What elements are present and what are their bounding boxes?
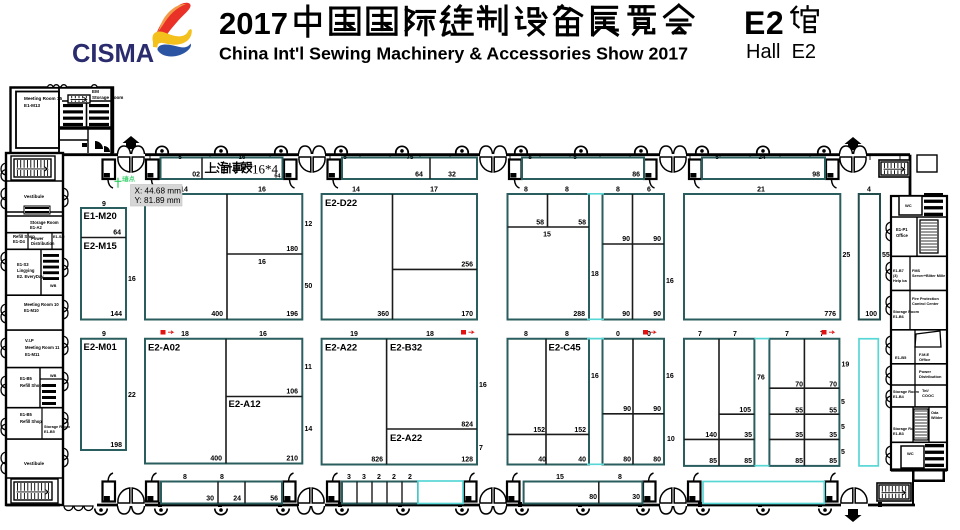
svg-text:19: 19 bbox=[842, 362, 850, 369]
svg-text:WC: WC bbox=[905, 203, 912, 208]
svg-text:10: 10 bbox=[667, 436, 675, 443]
svg-text:85: 85 bbox=[709, 458, 717, 465]
svg-text:18: 18 bbox=[591, 271, 599, 278]
svg-text:E2-B32: E2-B32 bbox=[390, 343, 422, 354]
svg-text:180: 180 bbox=[286, 246, 298, 253]
svg-text:Fire Protection: Fire Protection bbox=[912, 297, 939, 301]
svg-text:Control Center: Control Center bbox=[912, 302, 939, 306]
svg-text:24: 24 bbox=[759, 155, 766, 161]
svg-text:11: 11 bbox=[305, 364, 313, 371]
svg-text:18: 18 bbox=[426, 331, 434, 338]
svg-text:106: 106 bbox=[286, 389, 298, 396]
svg-text:55: 55 bbox=[882, 252, 890, 259]
svg-text:85: 85 bbox=[795, 458, 803, 465]
svg-text:EM: EM bbox=[92, 89, 99, 94]
svg-text:E1-M20: E1-M20 bbox=[84, 211, 117, 222]
svg-text:8: 8 bbox=[524, 187, 528, 194]
svg-text:170: 170 bbox=[461, 311, 473, 318]
svg-text:152: 152 bbox=[533, 427, 545, 434]
svg-text:196: 196 bbox=[286, 311, 298, 318]
svg-text:55: 55 bbox=[795, 408, 803, 415]
svg-text:WB: WB bbox=[50, 284, 57, 288]
svg-text:25: 25 bbox=[843, 252, 851, 259]
svg-text:80: 80 bbox=[623, 457, 631, 464]
svg-text:210: 210 bbox=[286, 456, 298, 463]
svg-text:E1-D4: E1-D4 bbox=[13, 239, 26, 244]
svg-text:75: 75 bbox=[407, 155, 414, 161]
svg-text:16: 16 bbox=[128, 276, 136, 283]
svg-text:E1-B3: E1-B3 bbox=[893, 432, 904, 436]
svg-text:E2: E2 bbox=[744, 5, 784, 41]
svg-text:(3): (3) bbox=[893, 274, 898, 278]
svg-text:90: 90 bbox=[653, 311, 661, 318]
svg-text:COOC: COOC bbox=[922, 393, 934, 398]
svg-text:7: 7 bbox=[698, 331, 702, 338]
svg-text:16: 16 bbox=[666, 278, 674, 285]
svg-text:Lingying: Lingying bbox=[17, 268, 35, 273]
svg-text:Distribution: Distribution bbox=[31, 241, 55, 246]
svg-text:16: 16 bbox=[239, 155, 246, 161]
svg-text:E1-B4: E1-B4 bbox=[893, 395, 905, 399]
svg-text:16: 16 bbox=[258, 187, 266, 194]
svg-text:21: 21 bbox=[757, 187, 765, 194]
svg-text:15: 15 bbox=[556, 474, 564, 481]
svg-text:17: 17 bbox=[430, 187, 438, 194]
svg-text:85: 85 bbox=[744, 458, 752, 465]
svg-text:WB: WB bbox=[50, 374, 57, 378]
svg-text:85: 85 bbox=[829, 458, 837, 465]
svg-text:E1-B5: E1-B5 bbox=[20, 412, 33, 417]
svg-text:3: 3 bbox=[347, 474, 351, 481]
svg-text:E2-C45: E2-C45 bbox=[549, 343, 582, 354]
svg-text:14: 14 bbox=[352, 187, 360, 194]
svg-text:7: 7 bbox=[785, 331, 789, 338]
svg-text:Distribution: Distribution bbox=[919, 374, 942, 379]
svg-text:Storage Room: Storage Room bbox=[893, 390, 920, 394]
svg-text:6: 6 bbox=[647, 187, 651, 194]
svg-text:E1-P1: E1-P1 bbox=[896, 227, 908, 232]
svg-text:FMS: FMS bbox=[912, 269, 920, 273]
svg-text:256: 256 bbox=[461, 262, 473, 269]
svg-text:2: 2 bbox=[408, 474, 412, 481]
svg-text:Wilder: Wilder bbox=[931, 416, 943, 420]
svg-text:80: 80 bbox=[653, 457, 661, 464]
svg-text:CISMA: CISMA bbox=[72, 40, 154, 68]
svg-text:China Int'l Sewing Machinery &: China Int'l Sewing Machinery & Accessori… bbox=[219, 44, 688, 64]
svg-text:86: 86 bbox=[632, 172, 640, 179]
svg-text:4: 4 bbox=[867, 187, 871, 194]
svg-text:30: 30 bbox=[632, 494, 640, 501]
svg-text:Vestibule: Vestibule bbox=[24, 194, 45, 199]
svg-text:9: 9 bbox=[102, 201, 106, 208]
svg-text:E1-B6: E1-B6 bbox=[893, 315, 904, 319]
svg-text:8: 8 bbox=[183, 474, 187, 481]
svg-text:E2-A12: E2-A12 bbox=[229, 399, 261, 410]
svg-text:E1-B5: E1-B5 bbox=[44, 430, 55, 434]
svg-text:Meeting Room 11: Meeting Room 11 bbox=[25, 345, 60, 350]
svg-text:40: 40 bbox=[578, 457, 586, 464]
svg-text:90: 90 bbox=[622, 311, 630, 318]
svg-text:76: 76 bbox=[757, 375, 765, 382]
svg-text:35: 35 bbox=[795, 432, 803, 439]
svg-text:8: 8 bbox=[220, 474, 224, 481]
svg-text:5: 5 bbox=[841, 399, 845, 406]
svg-text:98: 98 bbox=[812, 172, 820, 179]
svg-text:E2-A02: E2-A02 bbox=[148, 343, 180, 354]
svg-text:E1-M11: E1-M11 bbox=[25, 352, 40, 357]
svg-text:360: 360 bbox=[377, 311, 389, 318]
svg-text:E2-M15: E2-M15 bbox=[84, 241, 118, 252]
svg-text:Refill Shop: Refill Shop bbox=[20, 383, 42, 388]
svg-text:Oda: Oda bbox=[931, 411, 939, 415]
svg-text:E1-B5: E1-B5 bbox=[20, 376, 33, 381]
svg-text:152: 152 bbox=[574, 427, 586, 434]
svg-text:X: 44.68 mm: X: 44.68 mm bbox=[135, 187, 182, 196]
svg-text:14: 14 bbox=[305, 426, 313, 433]
svg-text:35: 35 bbox=[829, 432, 837, 439]
svg-text:50: 50 bbox=[305, 283, 313, 290]
svg-text:12: 12 bbox=[305, 221, 313, 228]
svg-text:400: 400 bbox=[211, 311, 223, 318]
svg-text:E2-A22: E2-A22 bbox=[390, 433, 422, 444]
svg-text:E1-S/2: E1-S/2 bbox=[53, 235, 65, 239]
svg-text:02: 02 bbox=[192, 172, 200, 179]
svg-text:2: 2 bbox=[377, 474, 381, 481]
svg-text:Meeting Room 10: Meeting Room 10 bbox=[24, 302, 59, 307]
svg-text:64: 64 bbox=[274, 174, 281, 180]
svg-text:400: 400 bbox=[210, 456, 222, 463]
svg-text:Storage Room: Storage Room bbox=[893, 310, 920, 314]
svg-text:826: 826 bbox=[371, 457, 383, 464]
svg-text:16: 16 bbox=[591, 373, 599, 380]
svg-text:90: 90 bbox=[623, 406, 631, 413]
svg-text:100: 100 bbox=[865, 311, 877, 318]
svg-text:140: 140 bbox=[705, 432, 717, 439]
svg-text:E1-A2: E1-A2 bbox=[30, 225, 43, 230]
svg-text:7: 7 bbox=[733, 331, 737, 338]
svg-text:56: 56 bbox=[270, 496, 278, 503]
svg-text:70: 70 bbox=[795, 382, 803, 389]
svg-text:16: 16 bbox=[479, 382, 487, 389]
svg-text:E2-D22: E2-D22 bbox=[325, 198, 357, 209]
svg-text:Server+Bliter Mille: Server+Bliter Mille bbox=[912, 274, 945, 278]
svg-text:18: 18 bbox=[181, 331, 189, 338]
svg-text:64: 64 bbox=[415, 172, 423, 179]
svg-text:64: 64 bbox=[113, 230, 121, 237]
svg-text:E1-B5: E1-B5 bbox=[895, 355, 907, 360]
svg-text:144: 144 bbox=[110, 311, 122, 318]
svg-text:Hall E2: Hall E2 bbox=[746, 41, 816, 63]
svg-text:24: 24 bbox=[233, 496, 241, 503]
svg-text:V.I.P: V.I.P bbox=[25, 338, 34, 343]
svg-text:Y: 81.89 mm: Y: 81.89 mm bbox=[135, 196, 181, 205]
svg-text:Office: Office bbox=[919, 357, 931, 362]
svg-text:105: 105 bbox=[739, 407, 751, 414]
svg-text:E1-S3: E1-S3 bbox=[17, 262, 29, 267]
svg-text:Storage Ro: Storage Ro bbox=[893, 427, 914, 431]
svg-text:Office: Office bbox=[896, 233, 909, 238]
svg-text:15: 15 bbox=[543, 232, 551, 239]
svg-text:7: 7 bbox=[479, 445, 483, 452]
svg-text:5: 5 bbox=[841, 424, 845, 431]
svg-text:22: 22 bbox=[128, 392, 136, 399]
svg-text:Meeting Room 15: Meeting Room 15 bbox=[24, 96, 62, 101]
svg-text:288: 288 bbox=[573, 311, 585, 318]
svg-text:3: 3 bbox=[362, 474, 366, 481]
svg-text:E2. EveryDay: E2. EveryDay bbox=[17, 274, 44, 279]
svg-text:19: 19 bbox=[350, 331, 358, 338]
svg-text:Refill Shop: Refill Shop bbox=[20, 419, 42, 424]
svg-text:90: 90 bbox=[653, 406, 661, 413]
svg-text:32: 32 bbox=[448, 172, 456, 179]
svg-text:776: 776 bbox=[824, 311, 836, 318]
svg-text:WC: WC bbox=[907, 451, 914, 456]
svg-text:2: 2 bbox=[392, 474, 396, 481]
svg-text:40: 40 bbox=[538, 457, 546, 464]
svg-text:0: 0 bbox=[616, 331, 620, 338]
svg-text:30: 30 bbox=[206, 496, 214, 503]
svg-text:8: 8 bbox=[618, 474, 622, 481]
svg-text:8: 8 bbox=[524, 331, 528, 338]
svg-text:90: 90 bbox=[653, 236, 661, 243]
svg-text:2017: 2017 bbox=[219, 6, 288, 41]
svg-text:8: 8 bbox=[565, 331, 569, 338]
svg-text:E1-M13: E1-M13 bbox=[24, 103, 41, 108]
svg-text:Storage Room: Storage Room bbox=[92, 95, 123, 100]
svg-text:8: 8 bbox=[565, 187, 569, 194]
svg-text:8: 8 bbox=[616, 187, 620, 194]
svg-text:16: 16 bbox=[259, 331, 267, 338]
svg-text:Help ba: Help ba bbox=[893, 279, 908, 283]
svg-text:E1-B7: E1-B7 bbox=[893, 269, 904, 273]
svg-text:55: 55 bbox=[829, 408, 837, 415]
svg-text:16: 16 bbox=[258, 259, 266, 266]
svg-text:70: 70 bbox=[829, 382, 837, 389]
svg-text:5: 5 bbox=[841, 449, 845, 456]
svg-text:198: 198 bbox=[110, 442, 122, 449]
svg-text:35: 35 bbox=[744, 432, 752, 439]
svg-text:128: 128 bbox=[461, 457, 473, 464]
svg-text:E2-A22: E2-A22 bbox=[325, 343, 357, 354]
svg-text:80: 80 bbox=[589, 494, 597, 501]
svg-text:824: 824 bbox=[461, 422, 473, 429]
svg-text:90: 90 bbox=[622, 236, 630, 243]
svg-text:58: 58 bbox=[536, 220, 544, 227]
svg-text:E1-M10: E1-M10 bbox=[24, 308, 39, 313]
svg-text:9: 9 bbox=[102, 331, 106, 338]
svg-text:E2-M01: E2-M01 bbox=[84, 342, 118, 353]
svg-text:Vestibule: Vestibule bbox=[24, 461, 45, 466]
svg-text:16: 16 bbox=[666, 373, 674, 380]
svg-text:58: 58 bbox=[578, 220, 586, 227]
